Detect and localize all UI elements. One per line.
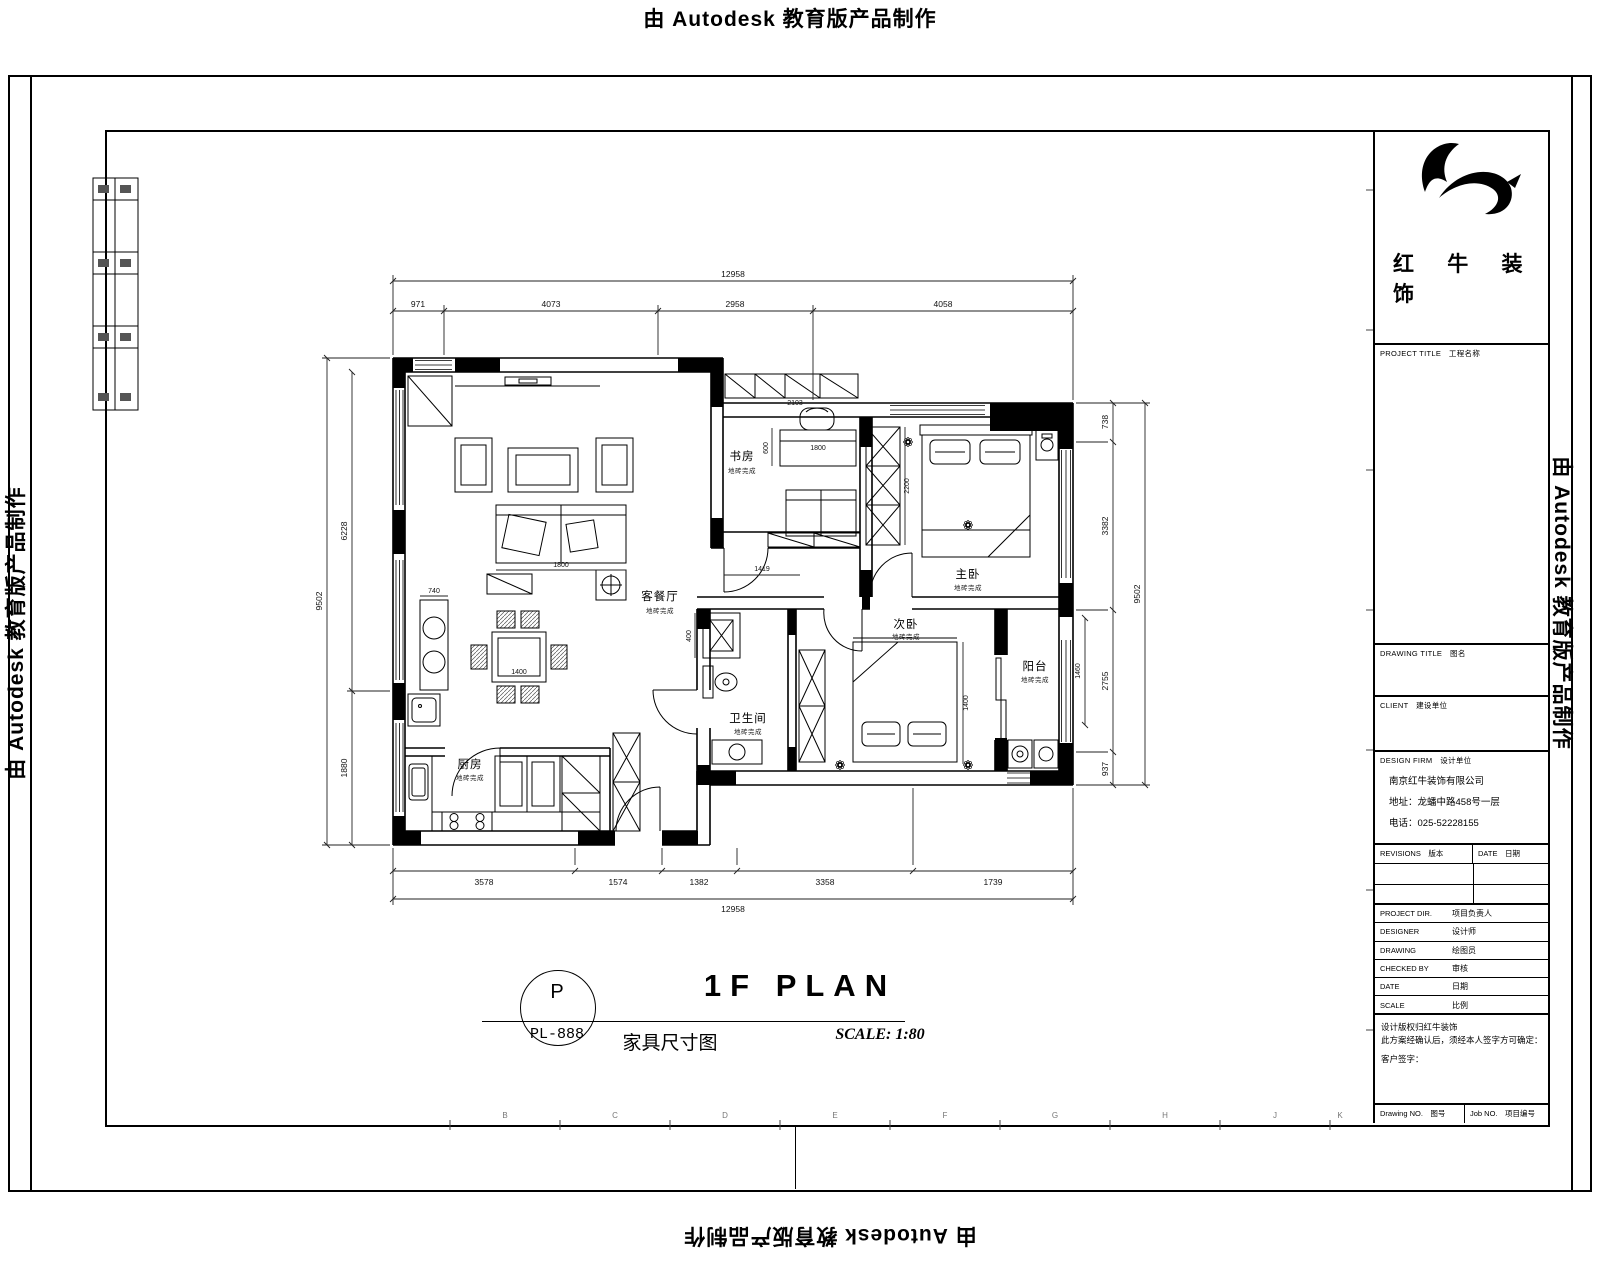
dim-desk: 1800 <box>810 445 826 452</box>
dim-left-2: 1880 <box>339 758 349 777</box>
logo-text-line1: 红 牛 装 <box>1375 248 1548 278</box>
client-label: CLIENT 建设单位 <box>1375 697 1548 711</box>
revisions-col-label: REVISIONS 版本 <box>1375 845 1473 863</box>
logo-section: 红 牛 装 饰 <box>1375 130 1548 345</box>
info-row-scale: SCALE 比例 <box>1375 996 1548 1014</box>
dim-balcony: 1460 <box>1075 663 1082 679</box>
design-firm-label: DESIGN FIRM 设计单位 <box>1375 752 1548 766</box>
info-row-date: DATE 日期 <box>1375 978 1548 996</box>
dim-right-4: 937 <box>1100 762 1110 776</box>
room-labels: 客餐厅 地砖完成 书房 地砖完成 主卧 地砖完成 次卧 地砖完成 阳台 地砖完成… <box>456 450 1049 782</box>
dim-desk-side: 600 <box>763 442 770 454</box>
grid-letter-e: E <box>832 1111 837 1120</box>
room-label-master: 主卧 <box>956 568 981 581</box>
dim-right-3: 2755 <box>1100 671 1110 690</box>
furniture <box>405 374 1058 831</box>
floor-plan: 客餐厅 地砖完成 书房 地砖完成 主卧 地砖完成 次卧 地砖完成 阳台 地砖完成… <box>0 0 1600 1280</box>
grid-letter-h: H <box>1162 1111 1168 1120</box>
drawing-sheet: 由 Autodesk 教育版产品制作 由 Autodesk 教育版产品制作 由 … <box>0 0 1600 1280</box>
room-sub-study: 地砖完成 <box>728 466 756 475</box>
dim-bottom-4: 3358 <box>816 877 835 887</box>
info-rows-section: PROJECT DIR. 项目负责人 DESIGNER 设计师 DRAWING … <box>1375 905 1548 1015</box>
drawing-title-section: DRAWING TITLE 图名 <box>1375 645 1548 697</box>
dim-study-top: 2103 <box>787 400 803 407</box>
client-section: CLIENT 建设单位 <box>1375 697 1548 752</box>
room-label-balcony: 阳台 <box>1023 659 1048 673</box>
dim-bottom-1: 3578 <box>475 877 494 887</box>
dim-top-2: 4073 <box>542 299 561 309</box>
room-label-kitchen: 厨房 <box>458 758 483 771</box>
info-cn: 设计师 <box>1452 926 1476 937</box>
title-block: 红 牛 装 饰 PROJECT TITLE 工程名称 DRAWING TITLE… <box>1373 130 1548 1123</box>
info-row-checked: CHECKED BY 审核 <box>1375 960 1548 978</box>
firm-address: 地址：龙蟠中路458号一层 <box>1375 794 1548 808</box>
redbull-logo-icon <box>1387 130 1537 240</box>
grid-letter-f: F <box>943 1111 948 1120</box>
grid-letter-c: C <box>612 1111 618 1120</box>
info-cn: 审核 <box>1452 963 1468 974</box>
info-row-designer: DESIGNER 设计师 <box>1375 923 1548 941</box>
info-en: DESIGNER <box>1375 927 1452 936</box>
dim-top-total: 12958 <box>721 269 745 279</box>
dim-top-1: 971 <box>411 299 425 309</box>
info-cn: 日期 <box>1452 981 1468 992</box>
dim-bottom-total: 12958 <box>721 904 745 914</box>
dim-left-total: 9502 <box>314 591 324 610</box>
logo-text-line2: 饰 <box>1375 278 1548 308</box>
dim-bed2: 1400 <box>963 695 970 711</box>
room-label-bath: 卫生间 <box>729 711 767 725</box>
grid-letter-j: J <box>1273 1111 1277 1120</box>
grid-letter-g: G <box>1052 1111 1058 1120</box>
dim-dining: 1400 <box>511 669 527 676</box>
project-title-label: PROJECT TITLE 工程名称 <box>1375 345 1548 359</box>
room-label-second: 次卧 <box>894 617 919 631</box>
dim-right-1: 738 <box>1100 415 1110 429</box>
room-sub-kitchen: 地砖完成 <box>456 773 484 782</box>
drawing-no-label: Drawing NO. 图号 <box>1375 1105 1465 1123</box>
plan-scale: SCALE: 1:80 <box>800 1026 960 1044</box>
room-label-study: 书房 <box>730 450 755 463</box>
room-sub-second: 地砖完成 <box>892 632 920 641</box>
plan-title-cn: 家具尺寸图 <box>600 1028 740 1055</box>
firm-company: 南京红牛装饰有限公司 <box>1375 773 1548 787</box>
dim-bottom-2: 1574 <box>609 877 628 887</box>
note-section: 设计版权归红牛装饰 此方案经确认后，须经本人签字方可确定： 客户签字： <box>1375 1015 1548 1105</box>
room-sub-balcony: 地砖完成 <box>1021 675 1049 684</box>
design-firm-section: DESIGN FIRM 设计单位 南京红牛装饰有限公司 地址：龙蟠中路458号一… <box>1375 752 1548 845</box>
grid-letter-k: K <box>1337 1111 1343 1120</box>
info-row-project-dir: PROJECT DIR. 项目负责人 <box>1375 905 1548 923</box>
dim-right-total: 9502 <box>1132 584 1142 603</box>
dim-top-4: 4058 <box>934 299 953 309</box>
dim-corridor: 1419 <box>754 566 770 573</box>
dim-sofa: 1800 <box>553 562 569 569</box>
revisions-section: REVISIONS 版本 DATE 日期 <box>1375 845 1548 905</box>
dim-top-3: 2958 <box>726 299 745 309</box>
info-row-drawing: DRAWING 绘图员 <box>1375 942 1548 960</box>
plan-title-en: 1F PLAN <box>640 968 960 1004</box>
firm-phone: 电话：025-52228155 <box>1375 815 1548 829</box>
date-col-label: DATE 日期 <box>1473 845 1520 863</box>
note-line2: 此方案经确认后，须经本人签字方可确定： <box>1381 1034 1544 1047</box>
room-sub-living: 地砖完成 <box>646 606 674 615</box>
info-cn: 项目负责人 <box>1452 908 1492 919</box>
dim-niche: 400 <box>686 630 693 642</box>
revision-row <box>1375 864 1548 885</box>
info-en: DATE <box>1375 982 1452 991</box>
room-label-living: 客餐厅 <box>641 589 679 603</box>
drawing-title-label: DRAWING TITLE 图名 <box>1375 645 1548 659</box>
dim-bar: 740 <box>428 588 440 595</box>
info-cn: 绘图员 <box>1452 945 1476 956</box>
plan-bubble-code: PL-888 <box>516 1026 598 1043</box>
revision-row <box>1375 885 1548 905</box>
dim-left-1: 6228 <box>339 521 349 540</box>
note-line1: 设计版权归红牛装饰 <box>1381 1021 1544 1034</box>
info-en: DRAWING <box>1375 946 1452 955</box>
room-sub-master: 地砖完成 <box>954 583 982 592</box>
info-en: PROJECT DIR. <box>1375 909 1452 918</box>
sheet-index-table <box>93 178 138 410</box>
drawing-no-section: Drawing NO. 图号 Job NO. 项目编号 <box>1375 1105 1548 1123</box>
info-en: CHECKED BY <box>1375 964 1452 973</box>
dim-bottom-5: 1739 <box>984 877 1003 887</box>
project-title-section: PROJECT TITLE 工程名称 <box>1375 345 1548 645</box>
grid-letter-b: B <box>502 1111 507 1120</box>
grid-letter-d: D <box>722 1111 728 1120</box>
note-line3: 客户签字： <box>1381 1053 1544 1066</box>
dim-wardrobe: 2200 <box>904 478 911 494</box>
plan-bubble-letter: P <box>520 981 594 1004</box>
room-sub-bath: 地砖完成 <box>734 727 762 736</box>
job-no-label: Job NO. 项目编号 <box>1465 1105 1535 1123</box>
info-en: SCALE <box>1375 1001 1452 1010</box>
info-cn: 比例 <box>1452 1000 1468 1011</box>
dim-bottom-3: 1382 <box>690 877 709 887</box>
dim-right-2: 3382 <box>1100 516 1110 535</box>
